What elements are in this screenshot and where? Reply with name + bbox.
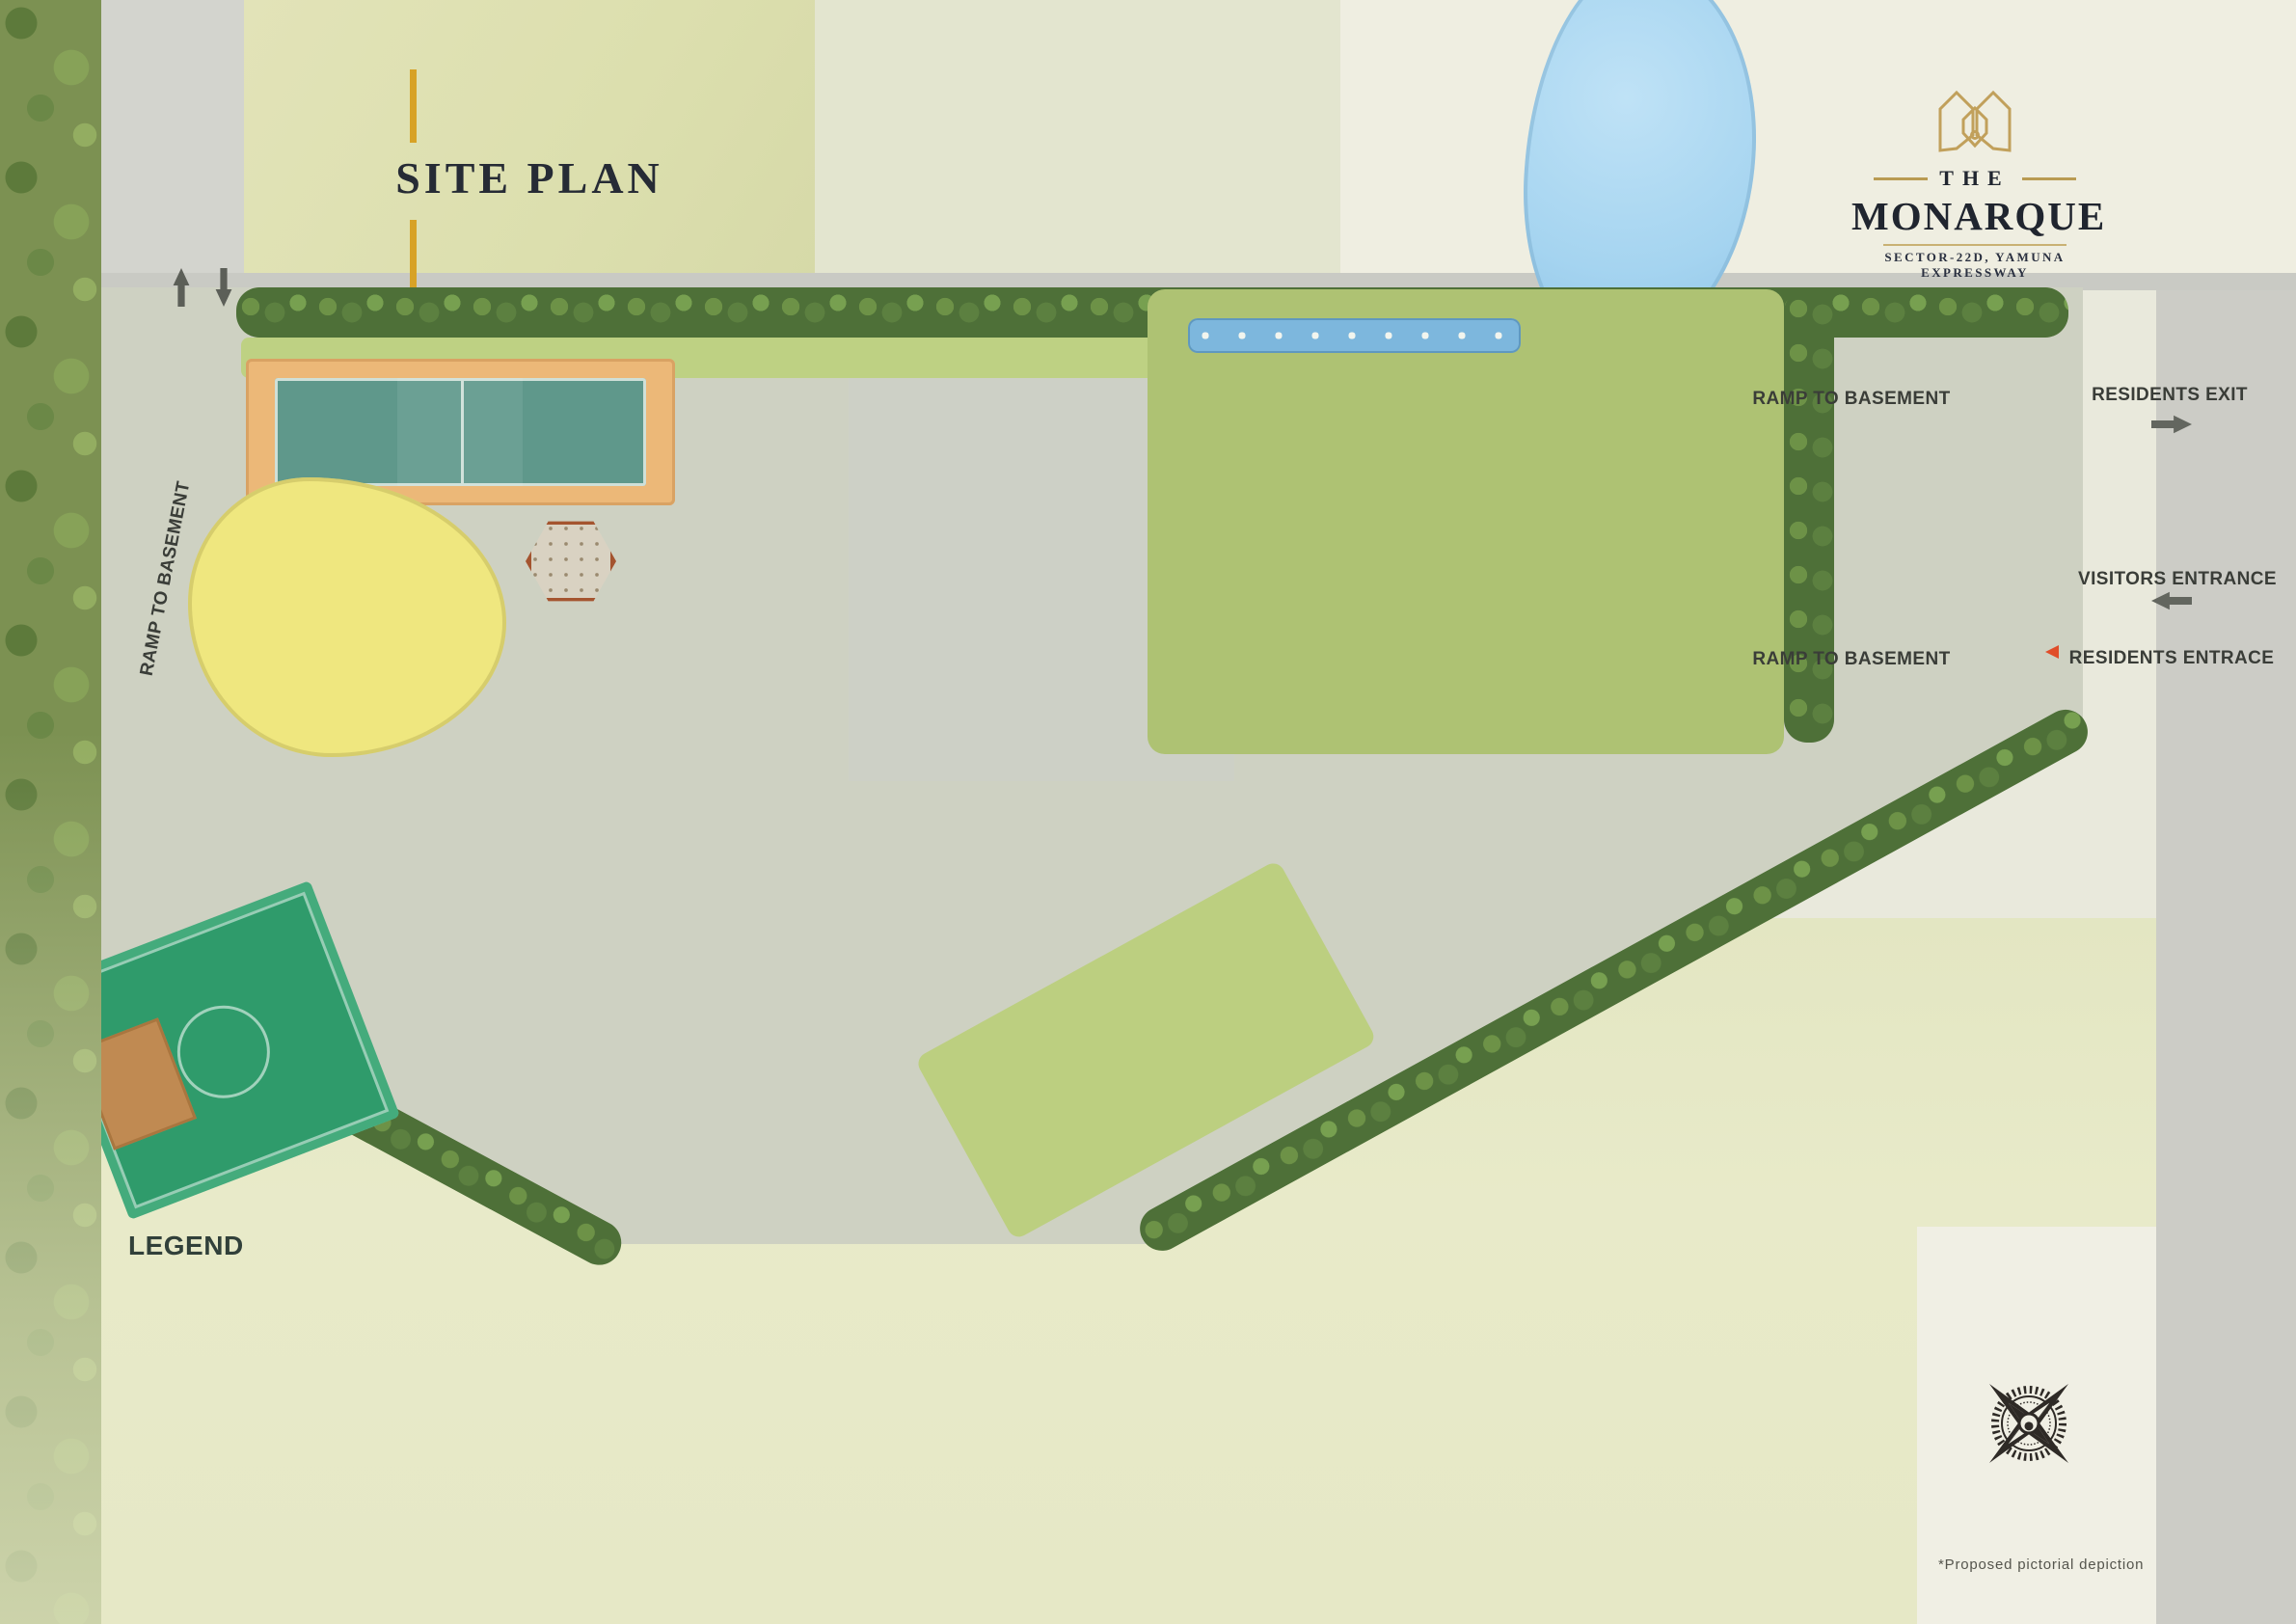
brand-the-row: THE xyxy=(1851,166,2098,191)
title-gold-line-top xyxy=(410,69,417,143)
residents-exit-label: RESIDENTS EXIT xyxy=(2092,385,2248,406)
brand-rule-left xyxy=(1874,177,1928,180)
visitors-entrance-label: VISITORS ENTRANCE xyxy=(2078,569,2277,590)
perimeter-forest-strip xyxy=(0,0,101,1624)
page-title: SITE PLAN xyxy=(244,152,815,203)
brand-tagline: SECTOR-22D, YAMUNA EXPRESSWAY xyxy=(1851,250,2098,281)
brand-block: THE MONARQUE SECTOR-22D, YAMUNA EXPRESSW… xyxy=(1851,85,2098,281)
title-gold-line-bottom xyxy=(410,220,417,289)
ramp-to-basement-top-label: RAMP TO BASEMENT xyxy=(1752,389,1950,410)
right-road-margin xyxy=(2156,276,2296,1624)
legend-heading: LEGEND xyxy=(128,1231,244,1261)
brand-rule-right xyxy=(2022,177,2076,180)
ramp-to-basement-bottom-label: RAMP TO BASEMENT xyxy=(1752,649,1950,670)
golf-course-area xyxy=(1148,289,1784,754)
compass-rose-icon xyxy=(1967,1362,2091,1485)
boundary-hedge-right xyxy=(1784,289,1834,743)
title-panel xyxy=(244,0,817,289)
residents-entrance-label: RESIDENTS ENTRACE xyxy=(2069,648,2275,669)
site-plan-page: SITE PLAN THE MONARQUE SECTOR-22D, YAMUN… xyxy=(0,0,2296,1624)
brand-name: MONARQUE xyxy=(1851,193,2098,239)
residents-entrance-marker-icon xyxy=(2045,645,2059,659)
top-panel xyxy=(815,0,1340,284)
footnote: *Proposed pictorial depiction xyxy=(1938,1556,2144,1573)
monarque-monogram-icon xyxy=(1927,85,2023,156)
brand-pre: THE xyxy=(1939,166,2010,191)
golf-stepping-stone-water xyxy=(1188,318,1521,353)
tennis-court-surface xyxy=(275,378,646,486)
brand-underline xyxy=(1883,244,2066,246)
top-right-panel xyxy=(1340,0,2296,280)
